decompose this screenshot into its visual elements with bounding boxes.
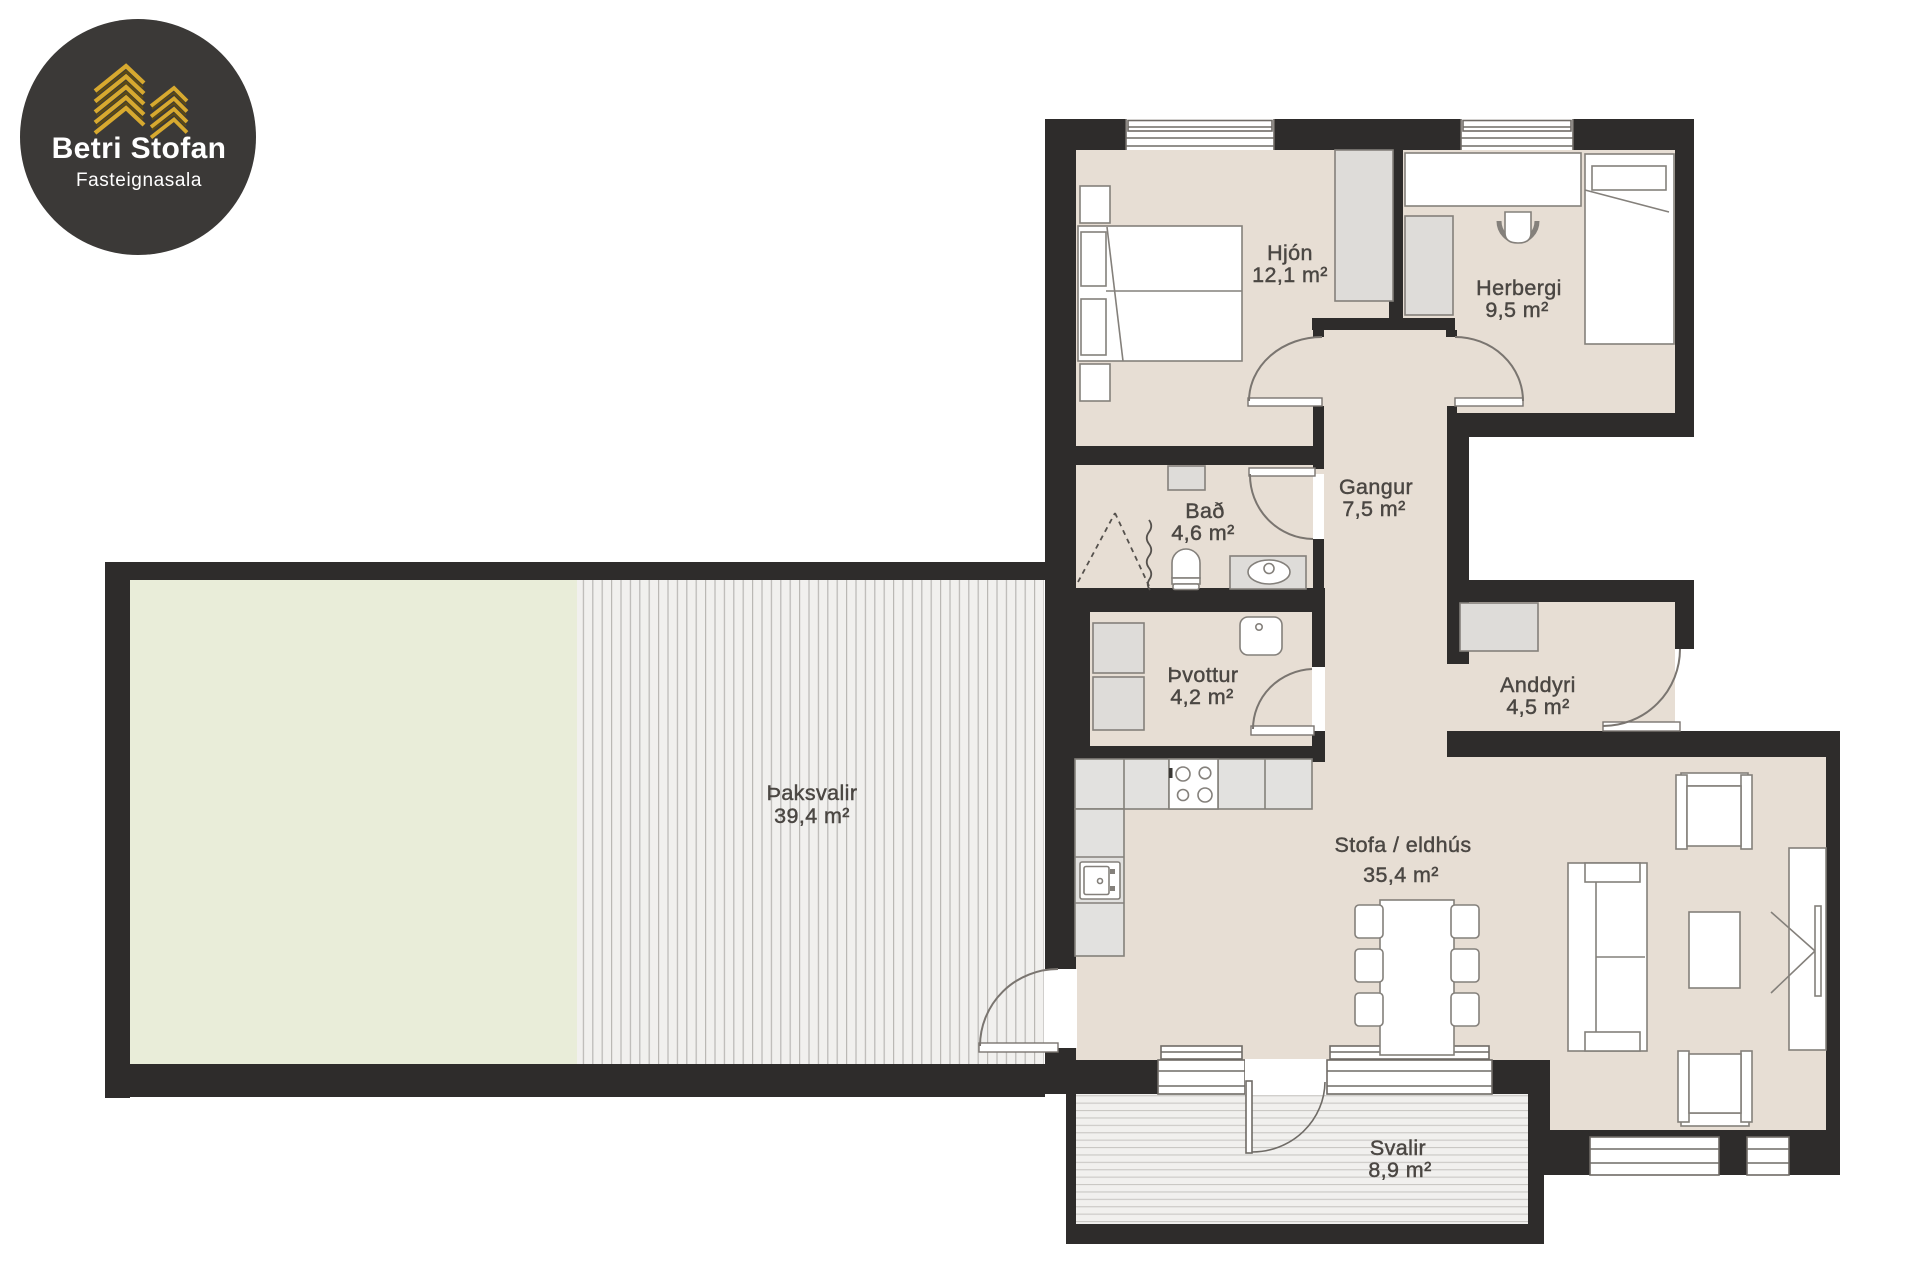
svg-text:12,1 m²: 12,1 m² (1252, 263, 1328, 287)
svg-text:35,4 m²: 35,4 m² (1363, 863, 1439, 887)
svg-text:4,2 m²: 4,2 m² (1170, 685, 1233, 709)
svg-text:8,9 m²: 8,9 m² (1368, 1158, 1431, 1182)
svg-text:Svalir: Svalir (1370, 1136, 1426, 1160)
svg-text:Fasteignasala: Fasteignasala (76, 170, 202, 191)
svg-text:Gangur: Gangur (1339, 475, 1413, 499)
svg-text:Anddyri: Anddyri (1500, 673, 1576, 697)
svg-text:4,6 m²: 4,6 m² (1171, 521, 1234, 545)
svg-text:Þaksvalir: Þaksvalir (767, 781, 858, 805)
svg-text:Hjón: Hjón (1267, 241, 1313, 265)
svg-text:9,5 m²: 9,5 m² (1485, 298, 1548, 322)
svg-text:7,5 m²: 7,5 m² (1342, 497, 1405, 521)
svg-text:Herbergi: Herbergi (1476, 276, 1562, 300)
svg-text:Þvottur: Þvottur (1168, 663, 1239, 687)
svg-text:Bað: Bað (1185, 499, 1224, 523)
svg-text:Betri Stofan: Betri Stofan (52, 132, 227, 165)
svg-text:39,4 m²: 39,4 m² (774, 804, 850, 828)
svg-text:Stofa / eldhús: Stofa / eldhús (1334, 833, 1471, 857)
svg-text:4,5 m²: 4,5 m² (1506, 695, 1569, 719)
